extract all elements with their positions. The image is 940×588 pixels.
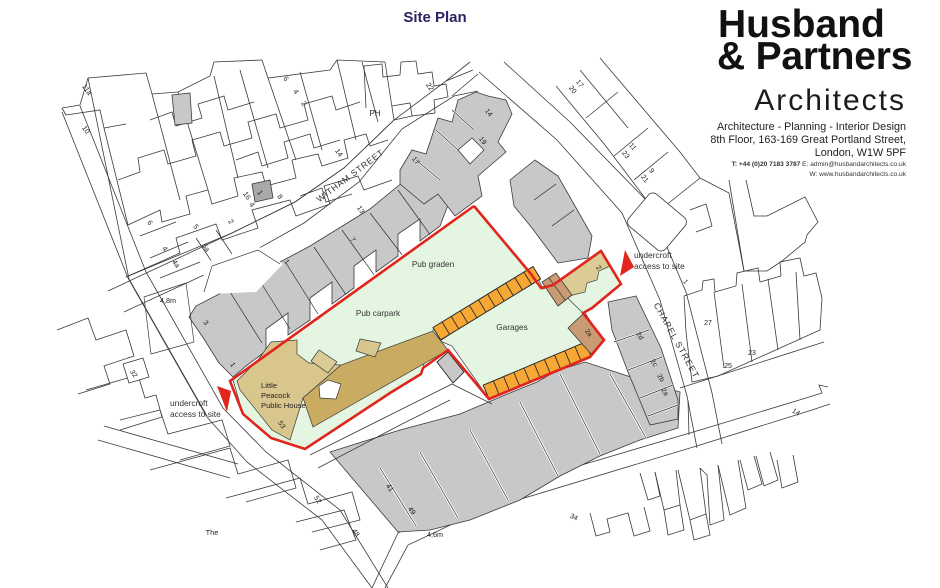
svg-text:23: 23 (748, 350, 756, 357)
svg-text:undercroft: undercroft (170, 398, 208, 408)
svg-text:Public House: Public House (261, 401, 306, 410)
svg-text:Pub graden: Pub graden (412, 260, 455, 269)
svg-text:4a: 4a (170, 258, 182, 270)
svg-text:34: 34 (569, 513, 579, 523)
svg-text:25: 25 (724, 363, 732, 370)
svg-text:8: 8 (275, 192, 285, 200)
svg-text:11a: 11a (80, 82, 94, 97)
svg-text:21: 21 (639, 174, 649, 185)
svg-text:22: 22 (424, 81, 436, 93)
svg-text:access to site: access to site (634, 261, 685, 271)
svg-text:undercroft: undercroft (634, 250, 672, 260)
svg-text:4: 4 (247, 200, 257, 208)
svg-text:WITHAM STREET: WITHAM STREET (315, 147, 386, 204)
svg-text:4,6m: 4,6m (427, 530, 443, 539)
svg-text:6: 6 (145, 218, 155, 226)
svg-text:Peacock: Peacock (261, 391, 290, 400)
svg-text:23: 23 (620, 150, 630, 161)
svg-text:20: 20 (567, 85, 577, 96)
svg-text:4: 4 (291, 87, 301, 95)
svg-text:52: 52 (312, 495, 322, 505)
svg-text:16: 16 (241, 190, 253, 202)
svg-text:PH: PH (369, 109, 380, 118)
svg-text:2: 2 (299, 99, 309, 107)
svg-text:Little: Little (261, 381, 277, 390)
svg-text:10: 10 (80, 124, 92, 136)
svg-text:4,8m: 4,8m (160, 296, 176, 305)
svg-text:2: 2 (226, 217, 236, 225)
svg-text:14: 14 (333, 147, 345, 159)
svg-text:The: The (206, 528, 219, 537)
svg-text:Pub carpark: Pub carpark (356, 309, 401, 318)
svg-text:27: 27 (704, 320, 712, 327)
svg-text:1: 1 (681, 278, 689, 286)
svg-text:6: 6 (281, 74, 291, 82)
svg-text:access to site: access to site (170, 409, 221, 419)
svg-text:Garages: Garages (496, 323, 527, 332)
